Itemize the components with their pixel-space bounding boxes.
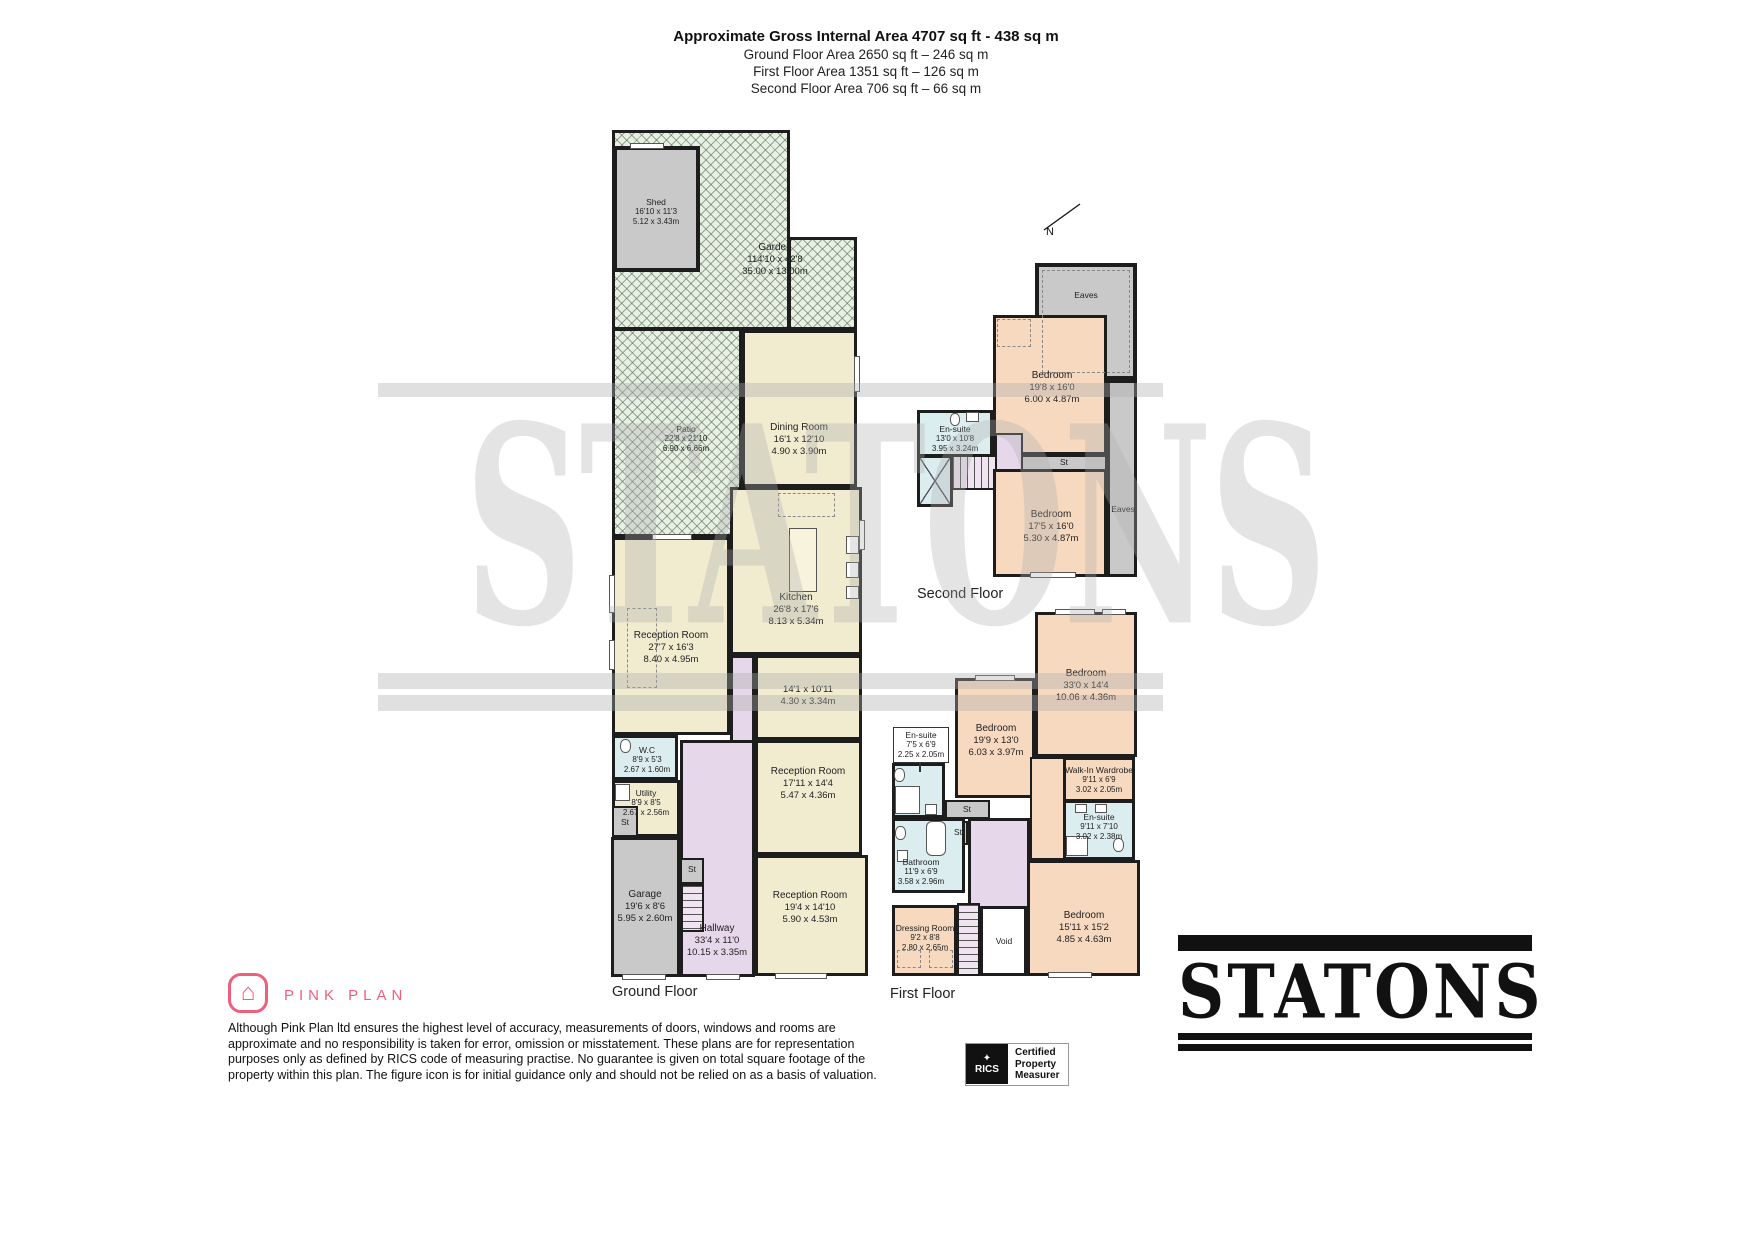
wc-label: W.C 8'9 x 5'3 2.67 x 1.60m (611, 745, 683, 775)
sf-eaves-label-2: Eaves (1095, 504, 1151, 514)
rics-cert: Certified Property Measurer (1008, 1044, 1068, 1085)
page: Approximate Gross Internal Area 4707 sq … (0, 0, 1754, 1240)
window (652, 534, 692, 540)
reception-room-2-label: Reception Room 17'11 x 14'4 5.47 x 4.36m (751, 766, 865, 802)
second-floor-caption: Second Floor (917, 586, 1003, 602)
utility-label: Utility 8'9 x 8'5 2.67 x 2.56m (610, 788, 682, 818)
ff-st-2-label: St (946, 827, 970, 837)
rics-text: RICS (975, 1064, 999, 1076)
reception-room-1-label: Reception Room 27'7 x 16'3 8.40 x 4.95m (614, 630, 728, 666)
kitchen-island (789, 528, 817, 592)
window (622, 974, 666, 980)
sf-bedroom-1-label: Bedroom 19'8 x 16'0 6.00 x 4.87m (995, 370, 1109, 406)
pink-plan-logo: ⌂ (228, 973, 268, 1013)
first-floor-area-line: First Floor Area 1351 sq ft – 126 sq m (566, 63, 1166, 80)
first-floor-caption: First Floor (890, 986, 955, 1002)
ensuite1-toilet-icon (894, 768, 905, 782)
rics-mark: ✦ RICS (966, 1044, 1008, 1084)
ensuite1-basin-icon (925, 804, 937, 815)
utility-st-label: St (613, 817, 637, 827)
disclaimer-line: purposes only as defined by RICS code of… (228, 1052, 972, 1068)
hallway-label: Hallway 33'4 x 11'0 10.15 x 3.35m (660, 923, 774, 959)
ground-floor-area-line: Ground Floor Area 2650 sq ft – 246 sq m (566, 46, 1166, 63)
disclaimer-line: Although Pink Plan ltd ensures the highe… (228, 1021, 972, 1037)
sf-eaves-right (1107, 380, 1137, 577)
window (1102, 609, 1126, 615)
sf-wardrobe-outline (997, 319, 1031, 347)
ff-bedroom-3-label: Bedroom 15'11 x 15'2 4.85 x 4.63m (1027, 910, 1141, 946)
statons-logo-bar-bottom (1178, 1044, 1532, 1051)
reception-room-3-label: Reception Room 19'4 x 14'10 5.90 x 4.53m (753, 890, 867, 926)
shed-label: Shed 16'10 x 11'3 5.12 x 3.43m (601, 197, 711, 227)
page-title: Approximate Gross Internal Area 4707 sq … (566, 27, 1166, 46)
dressing-room-label: Dressing Room 9'2 x 8'8 2.80 x 2.65m (868, 923, 982, 953)
disclaimer-line: approximate and no responsibility is tak… (228, 1037, 972, 1053)
room-dining (742, 330, 857, 487)
ff-landing (968, 818, 1030, 909)
bathroom-label: Bathroom 11'9 x 6'9 3.58 x 2.96m (884, 857, 958, 887)
fridge-icon (846, 536, 859, 554)
ground-floor-caption: Ground Floor (612, 984, 697, 1000)
ff-bedroom-1-label: Bedroom 33'0 x 14'4 10.06 x 4.36m (1029, 668, 1143, 704)
bathtub-icon (926, 821, 946, 856)
ff-ensuite-1-callout-pointer (919, 763, 921, 772)
sf-st-label: St (1052, 457, 1076, 467)
statons-logo: STATONS (1178, 935, 1532, 1051)
hall-st-label: St (681, 864, 703, 874)
pink-plan-brand: PINK PLAN (284, 987, 407, 1004)
room-14-1-label: 14'1 x 10'11 4.30 x 3.34m (751, 684, 865, 708)
sf-bedroom-2-label: Bedroom 17'5 x 16'0 5.30 x 4.87m (994, 509, 1108, 545)
ff-ensuite-2-label: En-suite 9'11 x 7'10 3.02 x 2.38m (1062, 812, 1136, 842)
north-arrow: N (1038, 200, 1084, 236)
window (775, 973, 827, 979)
window (859, 520, 865, 550)
north-letter: N (1046, 226, 1054, 236)
patio-label: Patio 22'8 x 21'10 6.90 x 6.66m (631, 424, 741, 454)
window (854, 356, 860, 392)
sf-ensuite-label: En-suite 13'0 x 10'8 3.95 x 3.24m (917, 424, 993, 454)
garden-label: Garden 114'10 x 42'8 35.00 x 13.00m (718, 242, 832, 278)
kitchen-label: Kitchen 26'8 x 17'6 8.13 x 5.34m (739, 592, 853, 628)
front-door-opening (706, 974, 740, 980)
window (630, 143, 664, 149)
rics-lion-icon: ✦ (983, 1053, 991, 1064)
kitchen-unit-outline (778, 493, 835, 517)
ensuite1-shower-icon (895, 786, 920, 814)
sf-stairs (951, 455, 997, 490)
rics-cert-line: Measurer (1015, 1070, 1059, 1082)
second-floor-area-line: Second Floor Area 706 sq ft – 66 sq m (566, 80, 1166, 97)
rics-cert-line: Certified (1015, 1047, 1059, 1059)
window (1055, 609, 1095, 615)
bathroom-toilet-icon (895, 826, 906, 840)
sf-eaves-label-1: Eaves (1053, 290, 1119, 300)
rics-cert-line: Property (1015, 1059, 1059, 1071)
header: Approximate Gross Internal Area 4707 sq … (566, 27, 1166, 97)
rics-badge: ✦ RICS Certified Property Measurer (965, 1043, 1069, 1086)
sf-cupboard (917, 455, 953, 507)
window (1030, 572, 1076, 578)
sf-basin-icon (966, 412, 979, 422)
ff-ensuite-1-label: En-suite 7'5 x 6'9 2.25 x 2.05m (894, 730, 948, 760)
ff-st-1-label: St (955, 804, 979, 814)
oven-icon (846, 562, 859, 578)
window (609, 575, 615, 613)
walkin-wardrobe-label: Walk-In Wardrobe 9'11 x 6'9 3.02 x 2.05m (1042, 765, 1156, 795)
dining-room-label: Dining Room 16'1 x 12'10 4.90 x 3.90m (742, 422, 856, 458)
void-label: Void (979, 936, 1029, 946)
sf-eaves-outline (1042, 270, 1130, 373)
disclaimer-line: property within this plan. The figure ic… (228, 1068, 972, 1084)
garage-label: Garage 19'6 x 8'6 5.95 x 2.60m (588, 889, 702, 925)
window (1048, 972, 1092, 978)
statons-logo-text: STATONS (1178, 955, 1532, 1043)
ff-bedroom-2-label: Bedroom 19'9 x 13'0 6.03 x 3.97m (939, 723, 1053, 759)
pink-plan-house-icon: ⌂ (241, 981, 256, 1005)
disclaimer: Although Pink Plan ltd ensures the highe… (228, 1021, 972, 1083)
window (975, 675, 1015, 681)
